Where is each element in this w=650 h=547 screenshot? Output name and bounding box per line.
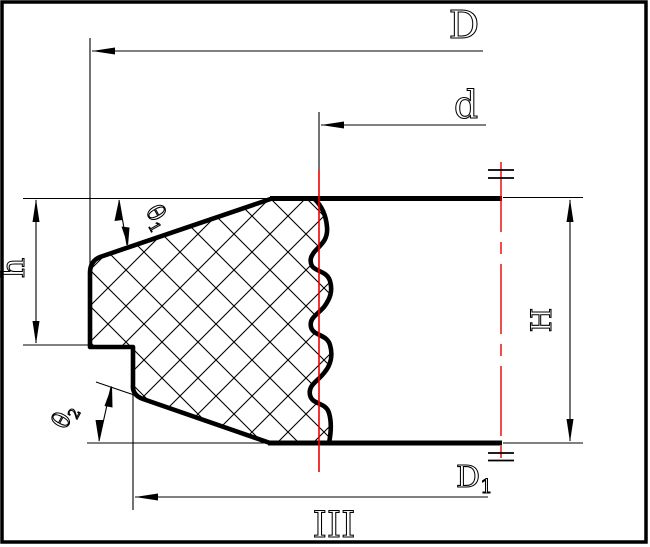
arrow-h-bottom-icon	[33, 321, 40, 344]
label-step-height: h	[0, 258, 32, 279]
label-angle-theta1: θ1	[137, 200, 176, 236]
label-bottom-diameter: D1	[456, 460, 493, 498]
arrow-theta2-top-icon	[105, 386, 113, 408]
arrow-D-icon	[92, 48, 115, 55]
arrow-d-icon	[321, 122, 344, 129]
label-angle-theta2: θ2	[46, 399, 85, 435]
label-view-number: III	[313, 505, 356, 546]
cad-drawing-viewport[interactable]: D d h H D1 θ1 θ2 III	[0, 0, 650, 547]
label-outer-diameter: D	[449, 3, 479, 47]
section-drawing: D d h H D1 θ1 θ2 III	[0, 0, 650, 547]
arrow-D1-icon	[135, 494, 158, 501]
arrow-h-top-icon	[33, 199, 40, 222]
label-inner-diameter: d	[454, 83, 478, 127]
label-total-height: H	[525, 308, 558, 332]
arrow-theta1-bottom-icon	[122, 227, 130, 247]
arrow-H-top-icon	[567, 199, 574, 222]
arrow-H-bottom-icon	[567, 419, 574, 442]
arrow-theta2-bottom-icon	[96, 420, 104, 442]
